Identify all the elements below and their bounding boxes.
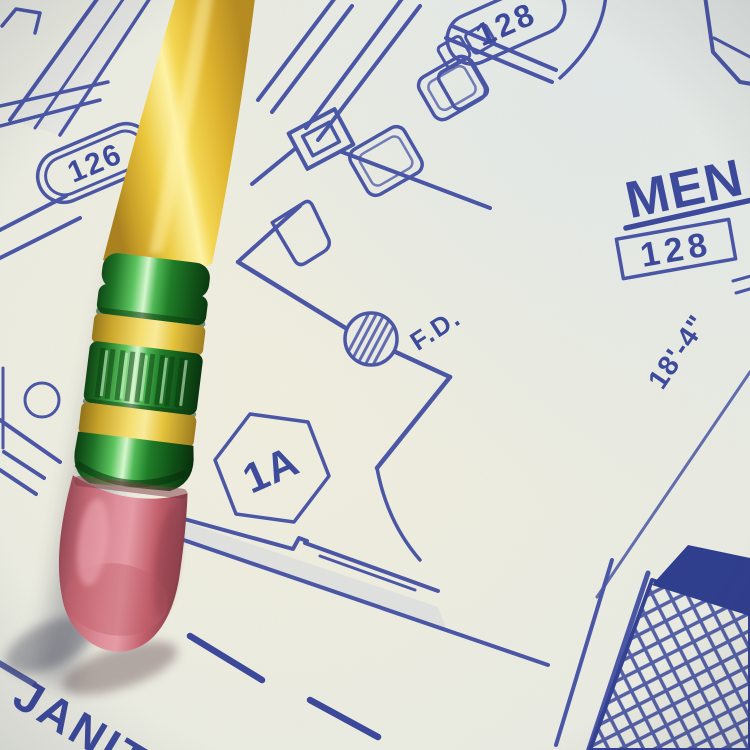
blueprint-pencil-photo: 126: [0, 0, 750, 750]
vignette: [0, 0, 750, 750]
photo-canvas: 126: [0, 0, 750, 750]
